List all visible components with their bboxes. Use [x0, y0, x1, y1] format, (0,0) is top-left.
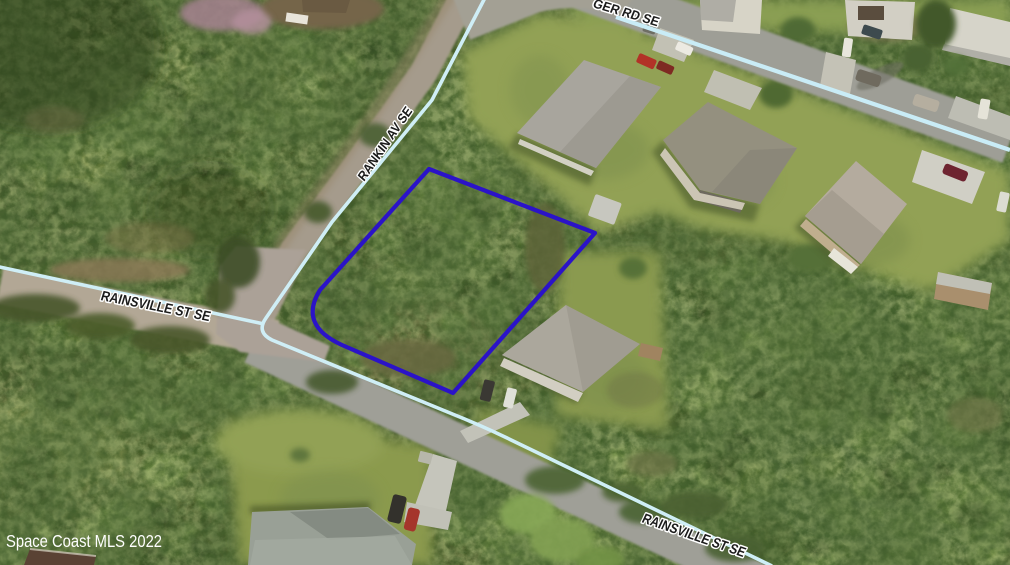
svg-text:Space Coast MLS 2022: Space Coast MLS 2022 — [6, 531, 162, 551]
